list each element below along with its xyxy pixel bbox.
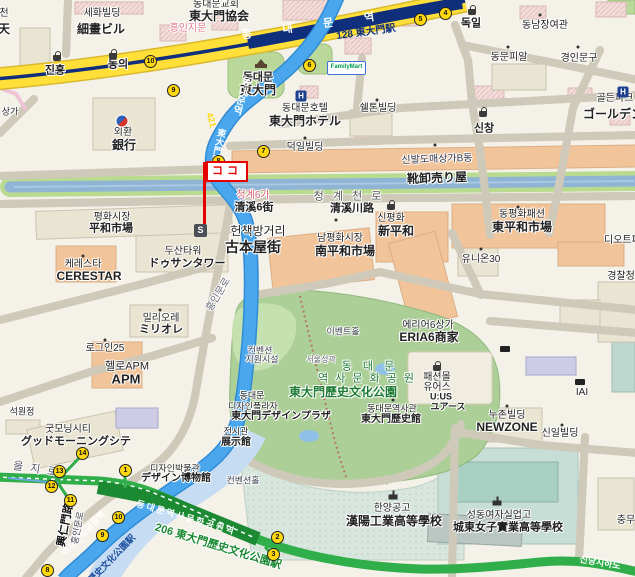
label-dongmun: 동문피알 xyxy=(491,53,528,63)
label-gmc-ja: グッドモーニングシテ xyxy=(21,437,131,448)
familymart-logo: FamilyMart xyxy=(327,61,366,75)
cheonggyecheon-stream xyxy=(10,181,635,187)
label-hotel-ko: 동대문호텔 xyxy=(282,104,328,114)
label-hanyang-ko: 한양공고 xyxy=(374,504,411,514)
label-exh-ko: 전시관 xyxy=(224,428,249,437)
subway-exit-9: 9 xyxy=(167,84,180,97)
school-icon xyxy=(389,495,398,500)
subway-exit-9: 9 xyxy=(96,529,109,542)
label-heunginjimun: 흥인지문 xyxy=(170,24,207,34)
subway-exit-4: 4 xyxy=(439,7,452,20)
label-gyeongin: 경인문구 xyxy=(561,54,598,64)
tinybox-icon xyxy=(575,379,585,385)
dot-icon xyxy=(159,309,162,312)
label-park-ko2: 역 사 문 화 공 원 xyxy=(318,374,416,385)
label-event: 이벤트홀 xyxy=(326,328,359,337)
label-seok: 석원정 xyxy=(10,408,35,417)
subway-exit-2: 2 xyxy=(271,531,284,544)
subway-exit-1: 1 xyxy=(119,464,132,477)
bag-icon xyxy=(387,204,395,210)
label-police: 경찰청 xyxy=(607,272,635,282)
label-dp-ja: 東平和市場 xyxy=(492,221,552,233)
subway-exit-5: 5 xyxy=(414,13,427,26)
label-apm-en: APM xyxy=(112,373,141,386)
label-jinheung: 진흥 xyxy=(45,66,65,77)
map-base-layer xyxy=(0,0,635,577)
hotel-icon: H xyxy=(296,91,307,102)
dot-icon xyxy=(561,424,564,427)
label-ph-ja: 平和市場 xyxy=(89,224,133,235)
subway-exit-13: 13 xyxy=(53,465,66,478)
label-hist-ja: 東大門歷史館 xyxy=(361,415,421,425)
koko-flag-marker: ココ xyxy=(206,161,248,182)
school-icon xyxy=(493,501,502,506)
label-diot: 디오트패션 xyxy=(604,236,635,246)
label-dokil: 독일 xyxy=(461,19,481,30)
label-ceres-en: CERESTAR xyxy=(56,270,121,282)
label-golden-ja: ゴールデン xyxy=(583,108,635,120)
label-sinil: 신일빌딩 xyxy=(542,429,579,439)
dot-icon xyxy=(517,206,520,209)
dot-icon xyxy=(480,248,483,251)
label-book-ko: 헌책방거리 xyxy=(230,225,285,237)
label-dm-ja: デザイン博物館 xyxy=(141,474,211,484)
dot-icon xyxy=(434,144,437,147)
label-eria-ja: ERIA6商家 xyxy=(399,331,458,343)
label-church-ja: 東大門協会 xyxy=(189,10,249,22)
map-canvas[interactable]: 천天세화빌딩細畫ビル동대문교회東大門協会흥인지문진흥동의동 대 문 역128 東… xyxy=(0,0,635,577)
label-keb-ko: 외환 xyxy=(114,128,132,138)
label-iai: IAI xyxy=(576,388,588,398)
hotel-icon: H xyxy=(618,87,629,98)
label-sp-ja: 新平和 xyxy=(378,225,414,237)
label-exh-ja: 展示館 xyxy=(221,438,251,448)
bag-icon xyxy=(433,365,441,371)
dot-icon xyxy=(507,46,510,49)
label-mig-ja: ミリオレ xyxy=(139,325,183,336)
label-sehwa-ja: 細畫ビル xyxy=(77,23,125,35)
label-fortress: 서울성곽 xyxy=(306,356,335,364)
subway-exit-12: 12 xyxy=(45,480,58,493)
label-sp-ko: 신평화 xyxy=(377,214,405,224)
label-shoe-ja: 靴卸売り屋 xyxy=(407,171,467,185)
subway-exit-7: 7 xyxy=(257,145,270,158)
label-hotel-ja: 東大門ホテル xyxy=(269,115,341,127)
label-dongui: 동의 xyxy=(108,60,128,71)
label-park-ja: 東大門歷史文化公園 xyxy=(289,386,397,398)
label-gmc-ko: 굿모닝시티 xyxy=(45,425,91,435)
label-book-ja: 古本屋街 xyxy=(225,240,281,254)
label-park-ko1: 동 대 문 xyxy=(342,362,398,373)
label-sheldon: 쉘톤빌딩 xyxy=(360,104,397,114)
label-np-ja: 南平和市場 xyxy=(315,245,375,257)
label-ddp1: 동대문 xyxy=(240,392,265,401)
label-fm3: U:US xyxy=(430,393,452,402)
dot-icon xyxy=(304,137,307,140)
label-nz-en: NEWZONE xyxy=(476,421,537,433)
bag-icon xyxy=(109,53,117,59)
label-chun-ja: 天 xyxy=(0,23,10,35)
label-sd-ko: 성동여자실업고 xyxy=(467,511,531,521)
label-conv2: 지원시설 xyxy=(245,356,278,365)
label-doosan-ko: 두산타워 xyxy=(165,247,202,257)
dot-icon xyxy=(577,46,580,49)
dot-icon xyxy=(506,405,509,408)
label-dp-ko: 동평화패션 xyxy=(499,210,545,220)
tinybox-icon xyxy=(500,346,510,352)
bag-icon xyxy=(479,111,487,117)
label-chungmu: 충무 xyxy=(617,516,635,526)
label-cgro-ko: 청 계 천 로 xyxy=(314,192,385,203)
subway-exit-3: 3 xyxy=(267,548,280,561)
dot-icon xyxy=(392,399,395,402)
dot-icon xyxy=(335,219,338,222)
dot-icon xyxy=(539,14,542,17)
temple-icon xyxy=(255,64,267,68)
label-sd-ja: 城東女子實業高等學校 xyxy=(453,523,563,534)
label-sinchang: 신창 xyxy=(474,124,494,135)
label-fm4: ユアース xyxy=(430,403,465,412)
label-login25: 로그인25 xyxy=(86,344,125,354)
bag-icon xyxy=(468,9,476,15)
label-cgro-ja: 清溪川路 xyxy=(330,204,374,215)
label-doosan-ja: ドゥサンタワー xyxy=(149,259,226,270)
label-cg6-ko: 청계6가 xyxy=(236,191,269,201)
label-hanyang-ja: 漢陽工業高等學校 xyxy=(346,515,442,527)
label-sehwa-ko: 세화빌딩 xyxy=(84,9,121,19)
subway-exit-8: 8 xyxy=(41,564,54,577)
subway-exit-10: 10 xyxy=(112,511,125,524)
start-point-marker: S xyxy=(194,224,207,237)
label-keb-ja: 銀行 xyxy=(112,139,136,151)
label-mig-ko: 밀리오레 xyxy=(143,314,180,324)
label-convhall: 컨벤션홀 xyxy=(226,477,259,486)
keb-icon xyxy=(116,115,129,128)
label-sangga: 상가 xyxy=(2,108,19,117)
subway-exit-10: 10 xyxy=(144,55,157,68)
label-np-ko: 남평화시장 xyxy=(317,234,363,244)
bag-icon xyxy=(53,55,61,61)
dot-icon xyxy=(376,99,379,102)
dot-icon xyxy=(104,339,107,342)
label-deokil: 덕일빌딩 xyxy=(287,143,324,153)
label-chun-ko: 천 xyxy=(0,9,9,19)
label-ddp3: 東大門デザインプラザ xyxy=(231,412,331,422)
label-dongnam: 동남장여관 xyxy=(522,21,568,31)
label-union30: 유니온30 xyxy=(462,255,501,265)
dot-icon xyxy=(82,255,85,258)
label-cg6-ja: 清溪6街 xyxy=(234,203,273,214)
label-hist-ko: 동대문역사관 xyxy=(367,405,417,414)
subway-exit-6: 6 xyxy=(303,59,316,72)
park-pond xyxy=(299,430,319,442)
subway-exit-11: 11 xyxy=(64,494,77,507)
label-ph-ko: 평화시장 xyxy=(94,213,131,223)
subway-exit-14: 14 xyxy=(76,447,89,460)
